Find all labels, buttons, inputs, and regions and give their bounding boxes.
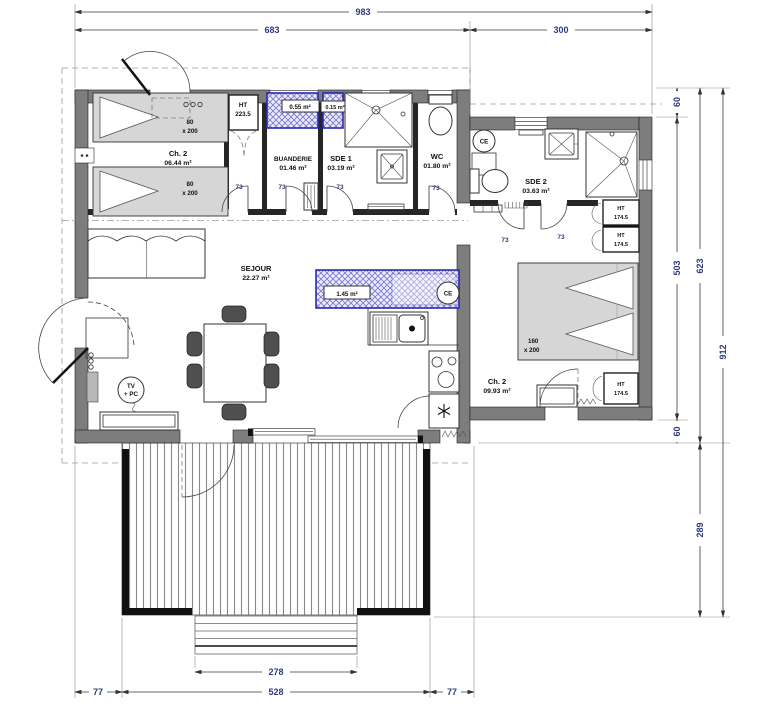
dim-body-height: 623 [695, 258, 705, 273]
hall-closet-ht-value: 223.5 [235, 111, 251, 118]
bed2-length: x 200 [182, 190, 198, 197]
room-wc [429, 95, 452, 135]
room-name-sde2: SDE 2 [525, 177, 547, 186]
toilet-tank-wc [429, 95, 452, 104]
tv-pc-marker [118, 377, 144, 403]
room-name-wc: WC [431, 152, 444, 161]
window-wing-right [639, 160, 652, 190]
dim-left-offset: 77 [93, 687, 103, 697]
closet1-ht: HT [617, 206, 625, 212]
dim-steps-width: 278 [268, 667, 283, 677]
bed1-width: 80 [187, 119, 194, 126]
closet-ht-1 [603, 200, 639, 225]
room-area-sde2: 03.63 m² [522, 188, 550, 195]
toilet-tank-sde2 [470, 169, 479, 193]
closet2-ht: HT [617, 233, 625, 239]
room-name-ch2-left: Ch. 2 [169, 149, 187, 158]
toilet-wc [429, 107, 452, 135]
dim-left-width: 683 [264, 25, 279, 35]
room-name-sejour: SEJOUR [241, 264, 272, 273]
shower-sde1 [345, 93, 412, 147]
tv-label: TV [127, 383, 136, 390]
room-area-ch2-left: 06.44 m² [164, 160, 192, 167]
hall-closet-ht-label: HT [239, 102, 247, 109]
dim-wing-height: 503 [672, 260, 682, 275]
dining-table [204, 324, 266, 402]
chair [264, 364, 279, 388]
closet-ht-3 [604, 373, 638, 404]
floor-plan-page: 983 683 300 60 503 60 623 289 912 [0, 0, 761, 708]
bed1-length: x 200 [182, 128, 198, 135]
closet3-value: 174.5 [614, 391, 628, 397]
chair [222, 306, 246, 322]
closet-ht-2 [603, 227, 639, 252]
door-width-sde1: 73 [336, 184, 344, 191]
duct-small-label: 0.15 m² [325, 104, 344, 111]
shower-sde2 [586, 132, 637, 197]
room-area-sde1: 03.19 m² [327, 165, 355, 172]
vent-left-wall [75, 148, 94, 163]
room-name-buanderie: BUANDERIE [274, 156, 313, 163]
terrace-steps [195, 616, 357, 654]
toilet-sde2 [482, 170, 508, 193]
dim-right-offset: 77 [447, 687, 457, 697]
room-area-sejour: 22.27 m² [242, 275, 270, 282]
floor-plan-svg: 983 683 300 60 503 60 623 289 912 [0, 0, 761, 708]
chair [222, 404, 246, 420]
terrace-rail-right [423, 449, 430, 615]
kitchen-duct-label: 1.45 m² [336, 291, 357, 298]
dim-overhang-bottom: 60 [672, 426, 682, 436]
room-name-sde1: SDE 1 [330, 154, 352, 163]
terrace-deck [122, 443, 430, 615]
dim-total-width: 983 [355, 7, 370, 17]
terrace-rail-bottom-left [122, 608, 192, 615]
duct-large-label: 0.55 m² [289, 104, 310, 111]
double-bed-width: 160 [528, 338, 539, 345]
double-bed-length: x 200 [524, 347, 540, 354]
closet3-ht: HT [617, 382, 625, 388]
room-area-wc: 01.80 m² [423, 163, 451, 170]
bed2-width: 80 [187, 181, 194, 188]
chair [187, 332, 202, 356]
door-width-buanderie: 73 [278, 184, 286, 191]
dim-terrace-width: 528 [268, 687, 283, 697]
dim-right-width: 300 [553, 25, 568, 35]
pc-label: + PC [124, 391, 138, 398]
dim-overhang-top: 60 [672, 97, 682, 107]
chair [187, 364, 202, 388]
door-width-sde2: 73 [557, 234, 565, 241]
dim-terrace-height: 289 [695, 522, 705, 537]
ce-sde2-label: CE [480, 139, 489, 146]
door-width-wc: 73 [432, 185, 440, 192]
closet2-value: 174.5 [614, 242, 628, 248]
ce-kitchen-label: CE [444, 291, 453, 298]
terrace-rail-left [122, 449, 129, 615]
closet1-value: 174.5 [614, 215, 628, 221]
electrical-panel [87, 372, 98, 402]
chair [264, 332, 279, 356]
room-area-ch2-right: 09.93 m² [483, 388, 511, 395]
room-area-buanderie: 01.46 m² [279, 165, 307, 172]
terrace-rail-bottom-right [357, 608, 430, 615]
door-width-ch2: 73 [235, 184, 243, 191]
room-name-ch2-right: Ch. 2 [488, 377, 506, 386]
door-width-bedroom: 73 [501, 237, 509, 244]
dim-total-height: 912 [718, 344, 728, 359]
